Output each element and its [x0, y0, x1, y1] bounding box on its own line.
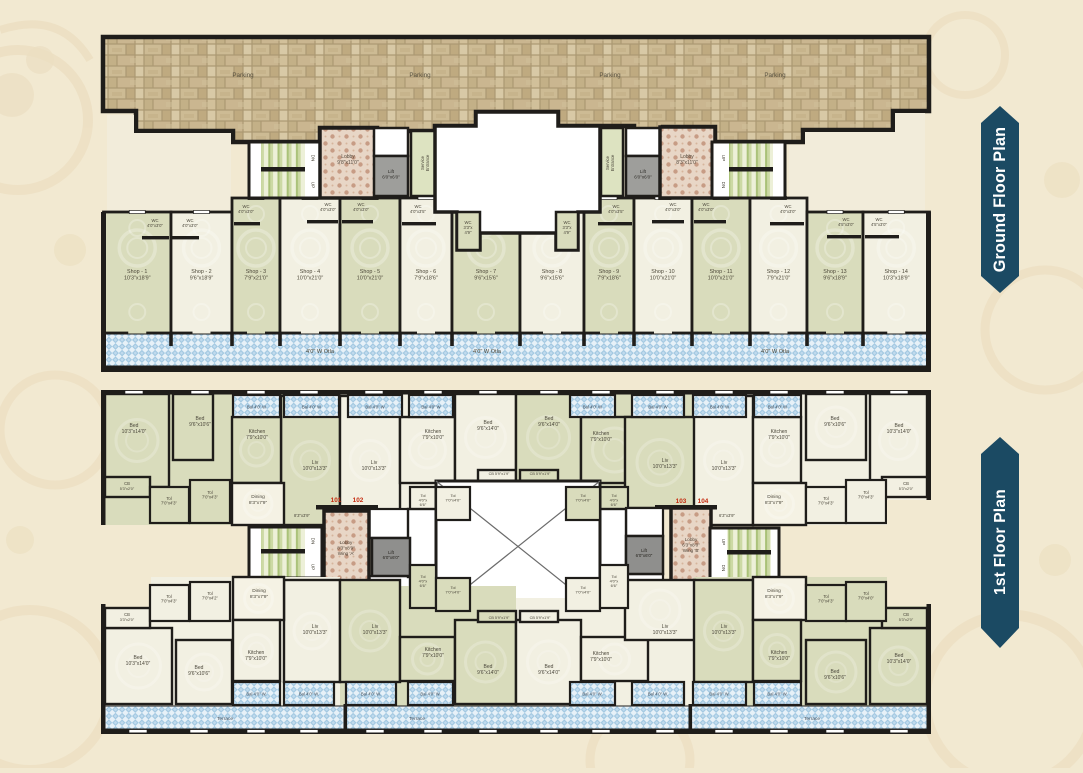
svg-text:7'0"x4'3": 7'0"x4'3" — [202, 495, 218, 500]
svg-text:CB: CB — [903, 481, 909, 486]
svg-text:4'0" W Otla: 4'0" W Otla — [761, 349, 790, 355]
svg-text:7'0"x4'0": 7'0"x4'0" — [575, 497, 591, 502]
svg-text:Bal 4'0" W: Bal 4'0" W — [247, 405, 266, 410]
svg-text:Entrance: Entrance — [610, 154, 615, 171]
svg-text:Lift: Lift — [388, 169, 395, 174]
svg-text:10'3"x14'0": 10'3"x14'0" — [126, 661, 151, 667]
svg-text:4'5"x3'0": 4'5"x3'0" — [871, 222, 887, 227]
svg-text:10'0"x13'3": 10'0"x13'3" — [712, 466, 737, 472]
svg-text:9'6"x18'9": 9'6"x18'9" — [190, 275, 214, 281]
svg-text:UP: UP — [721, 539, 726, 545]
svg-text:4'0"x3'0": 4'0"x3'0" — [780, 209, 796, 214]
svg-text:4'0"x3'0": 4'0"x3'0" — [147, 223, 163, 228]
svg-text:7'0"x4'0": 7'0"x4'0" — [858, 596, 874, 601]
svg-text:4'0"x3'0": 4'0"x3'0" — [182, 223, 198, 228]
svg-text:7'0"x4'3": 7'0"x4'3" — [818, 599, 834, 604]
svg-text:Shop - 12: Shop - 12 — [767, 269, 790, 275]
svg-text:Bal 4'0" W.: Bal 4'0" W. — [420, 692, 440, 697]
svg-text:7'0"x4'0": 7'0"x4'0" — [445, 589, 461, 594]
svg-text:CB 5'9"x1'9": CB 5'9"x1'9" — [530, 472, 551, 476]
svg-text:9'6"x10'6": 9'6"x10'6" — [824, 675, 846, 681]
svg-text:9'6"x15'6": 9'6"x15'6" — [540, 275, 564, 281]
svg-text:9'6"x14'0": 9'6"x14'0" — [538, 422, 560, 428]
svg-text:Parking: Parking — [764, 72, 786, 79]
svg-text:7'0"x4'0": 7'0"x4'0" — [575, 589, 591, 594]
svg-text:10'0"x13'3": 10'0"x13'3" — [653, 630, 678, 636]
svg-text:6'6": 6'6" — [611, 502, 618, 507]
svg-text:4'5"x3'0": 4'5"x3'0" — [838, 222, 854, 227]
svg-text:103: 103 — [676, 498, 687, 505]
svg-text:Shop - 1: Shop - 1 — [127, 269, 147, 275]
svg-text:UP: UP — [721, 155, 726, 161]
svg-text:Dining: Dining — [251, 494, 265, 500]
svg-text:Bal 4'0" W: Bal 4'0" W — [365, 405, 384, 410]
svg-text:Dining: Dining — [767, 494, 781, 500]
svg-text:9'6"x14'0": 9'6"x14'0" — [477, 670, 499, 676]
svg-text:DN: DN — [721, 182, 726, 189]
svg-text:102: 102 — [353, 497, 364, 504]
svg-text:10'0"x13'3": 10'0"x13'3" — [362, 466, 387, 472]
svg-text:Bal 4'0" W: Bal 4'0" W — [768, 405, 787, 410]
svg-text:Bal 4'0" W.: Bal 4'0" W. — [246, 692, 266, 697]
svg-text:Bal 4'0" W.: Bal 4'0" W. — [648, 692, 668, 697]
svg-text:8'3"x11'0": 8'3"x11'0" — [676, 160, 698, 166]
svg-text:10'0"x13'3": 10'0"x13'3" — [712, 630, 737, 636]
svg-text:6'0"x6'0": 6'0"x6'0" — [382, 175, 400, 180]
svg-text:Bal 4'0" W.: Bal 4'0" W. — [709, 692, 729, 697]
svg-text:CB 5'9"x1'9": CB 5'9"x1'9" — [489, 616, 510, 620]
svg-text:Terrace: Terrace — [409, 716, 425, 722]
svg-text:Shop - 10: Shop - 10 — [651, 269, 674, 275]
svg-text:Parking: Parking — [232, 72, 254, 79]
svg-text:7'9"x18'6": 7'9"x18'6" — [597, 275, 621, 281]
svg-text:10'0"x21'0": 10'0"x21'0" — [708, 275, 735, 281]
svg-text:10'3"x14'0": 10'3"x14'0" — [887, 429, 912, 435]
svg-text:6'3"x8'0": 6'3"x8'0" — [682, 542, 700, 547]
svg-text:4'0"x3'5": 4'0"x3'5" — [410, 209, 426, 214]
svg-text:Shop - 2: Shop - 2 — [191, 269, 211, 275]
svg-text:10'0"x13'3": 10'0"x13'3" — [363, 630, 388, 636]
svg-text:7'9"x10'0": 7'9"x10'0" — [768, 656, 790, 662]
svg-text:7'0"x4'3": 7'0"x4'3" — [161, 501, 177, 506]
svg-text:6'0"x6'0": 6'0"x6'0" — [634, 175, 652, 180]
svg-text:Bal 4'0" W: Bal 4'0" W — [583, 405, 602, 410]
svg-text:7'9"x10'0": 7'9"x10'0" — [422, 435, 444, 441]
svg-text:Shop - 4: Shop - 4 — [300, 269, 320, 275]
svg-text:6'0"x6'0": 6'0"x6'0" — [636, 553, 653, 558]
svg-text:7'9"x18'6": 7'9"x18'6" — [414, 275, 438, 281]
svg-text:8'3"x7'9": 8'3"x7'9" — [249, 500, 268, 506]
svg-text:9'6"x18'9": 9'6"x18'9" — [823, 275, 847, 281]
svg-text:7'9"x10'0": 7'9"x10'0" — [422, 653, 444, 659]
svg-text:CB: CB — [903, 612, 909, 617]
svg-text:7'9"x10'0": 7'9"x10'0" — [590, 437, 612, 443]
svg-text:Dining: Dining — [767, 588, 781, 594]
svg-text:Shop - 11: Shop - 11 — [710, 269, 733, 275]
svg-text:9'6"x14'0": 9'6"x14'0" — [477, 426, 499, 432]
svg-text:UP: UP — [311, 564, 316, 570]
svg-text:9'8"x11'0": 9'8"x11'0" — [337, 160, 359, 166]
svg-text:Parking: Parking — [599, 72, 621, 79]
svg-text:6'0"x6'0": 6'0"x6'0" — [383, 555, 400, 560]
svg-text:4'0" W Otla: 4'0" W Otla — [306, 349, 335, 355]
svg-text:Shop - 8: Shop - 8 — [542, 269, 562, 275]
svg-text:Shop - 14: Shop - 14 — [885, 269, 908, 275]
svg-text:Shop - 5: Shop - 5 — [360, 269, 380, 275]
svg-text:DN: DN — [311, 538, 316, 545]
svg-text:Wing 'A': Wing 'A' — [338, 551, 355, 556]
svg-text:6'6": 6'6" — [420, 502, 427, 507]
svg-text:7'9"x21'0": 7'9"x21'0" — [767, 275, 791, 281]
svg-text:7'0"x4'2": 7'0"x4'2" — [202, 596, 218, 601]
svg-text:Ground Floor Plan: Ground Floor Plan — [991, 127, 1009, 272]
svg-text:10'0"x13'3": 10'0"x13'3" — [303, 466, 328, 472]
svg-text:7'9"x10'0": 7'9"x10'0" — [245, 656, 267, 662]
svg-text:Wing 'B': Wing 'B' — [683, 548, 700, 553]
svg-text:7'9"x21'0": 7'9"x21'0" — [244, 275, 268, 281]
svg-text:Shop - 3: Shop - 3 — [246, 269, 266, 275]
svg-text:DN: DN — [311, 155, 316, 162]
svg-text:5'3"x2'0": 5'3"x2'0" — [899, 618, 914, 622]
svg-text:6'6": 6'6" — [611, 583, 618, 588]
svg-text:Bal 4'0" W.: Bal 4'0" W. — [361, 692, 381, 697]
svg-text:CB 5'9"x1'9": CB 5'9"x1'9" — [489, 472, 510, 476]
svg-text:3'3"x2'0": 3'3"x2'0" — [120, 618, 135, 622]
svg-text:Entrance: Entrance — [425, 154, 430, 171]
svg-text:9'6"x10'6": 9'6"x10'6" — [189, 422, 211, 428]
svg-text:7'0"x4'3": 7'0"x4'3" — [161, 599, 177, 604]
svg-text:Terrace: Terrace — [804, 716, 820, 722]
svg-text:CB 5'9"x1'9": CB 5'9"x1'9" — [530, 616, 551, 620]
svg-text:4'0"x3'0": 4'0"x3'0" — [665, 207, 681, 212]
svg-text:4'0" W Otla: 4'0" W Otla — [473, 349, 502, 355]
svg-text:4'0"x3'0": 4'0"x3'0" — [320, 207, 336, 212]
svg-text:Terrace: Terrace — [217, 716, 233, 722]
svg-text:10'3"x14'0": 10'3"x14'0" — [122, 429, 147, 435]
svg-text:Parking: Parking — [409, 72, 431, 79]
svg-text:7'9"x10'0": 7'9"x10'0" — [590, 657, 612, 663]
svg-text:7'9"x10'0": 7'9"x10'0" — [768, 435, 790, 441]
svg-text:DN: DN — [721, 565, 726, 572]
svg-text:CB: CB — [124, 612, 130, 617]
svg-text:6'6": 6'6" — [420, 583, 427, 588]
svg-text:Bal 4'0" W.: Bal 4'0" W. — [299, 692, 319, 697]
svg-text:7'0"x4'3": 7'0"x4'3" — [818, 501, 834, 506]
svg-text:Bal 4'0" W: Bal 4'0" W — [421, 405, 440, 410]
svg-text:101: 101 — [331, 497, 342, 504]
svg-text:Dining: Dining — [252, 588, 266, 594]
svg-text:Bal 4'0" W: Bal 4'0" W — [710, 405, 729, 410]
svg-text:4'0"x3'0": 4'0"x3'0" — [698, 207, 714, 212]
svg-text:4'9": 4'9" — [465, 230, 472, 235]
svg-text:9'6"x10'6": 9'6"x10'6" — [188, 671, 210, 677]
svg-text:Shop - 6: Shop - 6 — [416, 269, 436, 275]
svg-text:10'0"x13'3": 10'0"x13'3" — [653, 464, 678, 470]
svg-text:10'3"x14'0": 10'3"x14'0" — [887, 659, 912, 665]
svg-text:8'3"x7'9": 8'3"x7'9" — [250, 594, 269, 600]
svg-text:7'0"x4'3": 7'0"x4'3" — [858, 495, 874, 500]
svg-text:Bal 4'0" W.: Bal 4'0" W. — [767, 692, 787, 697]
svg-text:5'3"x2'0": 5'3"x2'0" — [120, 487, 135, 491]
svg-text:4'9": 4'9" — [564, 230, 571, 235]
svg-text:10'0"x21'0": 10'0"x21'0" — [650, 275, 677, 281]
svg-text:7'9"x10'0": 7'9"x10'0" — [246, 435, 268, 441]
svg-text:10'0"x21'0": 10'0"x21'0" — [357, 275, 384, 281]
svg-text:Bal 4'0" W.: Bal 4'0" W. — [582, 692, 602, 697]
svg-text:Lobby: Lobby — [685, 537, 698, 542]
svg-text:Shop - 9: Shop - 9 — [599, 269, 619, 275]
svg-text:8'3"x3'9": 8'3"x3'9" — [294, 513, 310, 518]
svg-text:8'3"x7'9": 8'3"x7'9" — [765, 500, 784, 506]
svg-text:9'6"x14'0": 9'6"x14'0" — [538, 670, 560, 676]
svg-text:UP: UP — [311, 182, 316, 188]
svg-text:10'0"x21'0": 10'0"x21'0" — [297, 275, 324, 281]
svg-text:CB: CB — [124, 481, 130, 486]
svg-text:10'3"x18'9": 10'3"x18'9" — [124, 275, 151, 281]
svg-text:1st Floor Plan: 1st Floor Plan — [992, 489, 1009, 595]
svg-text:104: 104 — [698, 498, 709, 505]
svg-text:4'0"x3'5": 4'0"x3'5" — [608, 209, 624, 214]
svg-text:Shop - 7: Shop - 7 — [476, 269, 496, 275]
svg-text:Bal 4'0" W: Bal 4'0" W — [648, 405, 667, 410]
svg-text:9'6"x10'6": 9'6"x10'6" — [824, 422, 846, 428]
svg-text:10'3"x18'9": 10'3"x18'9" — [883, 275, 910, 281]
svg-text:7'0"x4'0": 7'0"x4'0" — [445, 497, 461, 502]
svg-text:6'3"x3'9": 6'3"x3'9" — [719, 513, 735, 518]
svg-text:4'0"x3'0": 4'0"x3'0" — [353, 207, 369, 212]
svg-text:9'6"x15'6": 9'6"x15'6" — [474, 275, 498, 281]
svg-text:Bal 4'0" W: Bal 4'0" W — [302, 405, 321, 410]
svg-text:8'3"x8'9": 8'3"x8'9" — [337, 545, 355, 550]
svg-text:8'3"x7'9": 8'3"x7'9" — [765, 594, 784, 600]
svg-text:Lobby: Lobby — [340, 540, 353, 545]
svg-text:Lift: Lift — [640, 169, 647, 174]
svg-text:4'0"x3'0": 4'0"x3'0" — [238, 209, 254, 214]
svg-text:Shop - 13: Shop - 13 — [823, 269, 846, 275]
svg-text:5'3"x2'0": 5'3"x2'0" — [899, 487, 914, 491]
svg-text:10'0"x13'3": 10'0"x13'3" — [303, 630, 328, 636]
